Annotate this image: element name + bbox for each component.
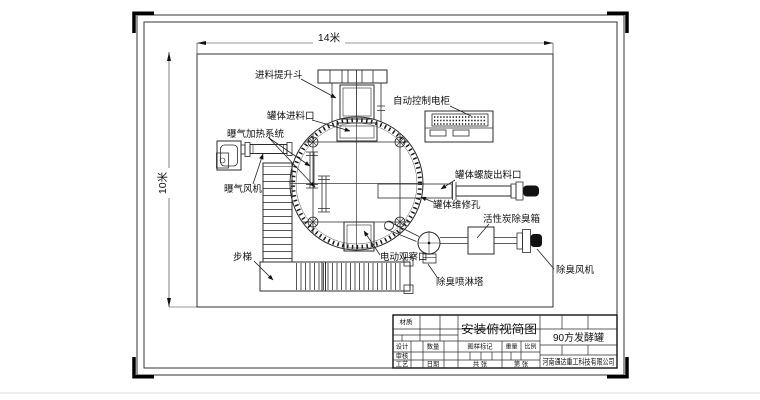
walkway-railing <box>296 263 404 290</box>
tb-drawing-title: 安装俯视简图 <box>461 322 537 336</box>
label-deodorize-fan: 除臭风机 <box>556 264 595 276</box>
tank-inlet-port <box>337 123 377 141</box>
tb-material: 材质 <box>400 317 414 326</box>
label-maintenance-hole: 罐体维修孔 <box>433 199 481 211</box>
label-observation-port: 电动观察口 <box>380 251 428 263</box>
label-carbon-box: 活性炭除臭箱 <box>483 213 540 225</box>
label-aeration-fan: 曝气风机 <box>224 183 263 195</box>
carbon-deodorize-box <box>468 227 494 254</box>
screw-drive-motor <box>523 186 539 197</box>
tb-design: 设计 <box>396 342 409 351</box>
screw-discharge <box>378 182 539 200</box>
observation-port <box>344 222 374 251</box>
tb-date: 日期 <box>427 360 440 368</box>
tb-weight: 重量 <box>505 343 517 351</box>
dim-height-label: 10米 <box>156 171 169 194</box>
stairs <box>263 163 292 262</box>
stair-steps <box>264 168 292 260</box>
aeration-pipe <box>250 145 287 154</box>
dim-width-label: 14米 <box>318 31 341 44</box>
tb-sheet-no: 第 张 <box>514 359 529 368</box>
label-feed-hopper: 进料提升斗 <box>255 69 303 81</box>
dimension-height: 10米 <box>156 52 197 307</box>
drawing-sheet: 14米 10米 <box>0 0 760 400</box>
tb-quantity: 数量 <box>427 342 440 351</box>
tb-scale: 比例 <box>524 343 536 351</box>
screw-spiral-section <box>378 184 452 198</box>
aeration-fan-unit <box>217 141 293 170</box>
label-aeration-heating: 曝气加热系统 <box>227 128 285 140</box>
label-tank-inlet: 罐体进料口 <box>267 110 315 122</box>
tb-process: 工艺 <box>396 360 409 368</box>
label-screw-outlet: 罐体螺旋出料口 <box>455 169 522 181</box>
tb-total-sheets: 共 张 <box>473 359 488 368</box>
label-stairs: 步梯 <box>233 251 253 263</box>
tb-product-name: 90方发酵罐 <box>553 331 604 344</box>
control-cabinet <box>425 111 493 142</box>
tb-company: 河南通达重工科技有限公司 <box>543 357 615 367</box>
label-spray-tower: 除臭喷淋塔 <box>436 276 484 288</box>
tb-mark: 图样标记 <box>467 342 493 351</box>
dimension-width: 14米 <box>197 31 553 54</box>
tb-review: 审核 <box>396 351 409 360</box>
title-block: 材质 安装俯视简图 90方发酵罐 设计 数量 图样标记 重量 比例 审核 工艺 … <box>393 315 617 368</box>
label-control-cabinet: 自动控制电柜 <box>393 95 451 107</box>
deodorize-fan-unit <box>517 230 542 253</box>
feed-hopper <box>318 70 387 123</box>
aeration-heaters <box>306 152 330 212</box>
cabinet-vent-dots <box>434 117 486 124</box>
engineering-drawing: 14米 10米 <box>0 0 760 400</box>
